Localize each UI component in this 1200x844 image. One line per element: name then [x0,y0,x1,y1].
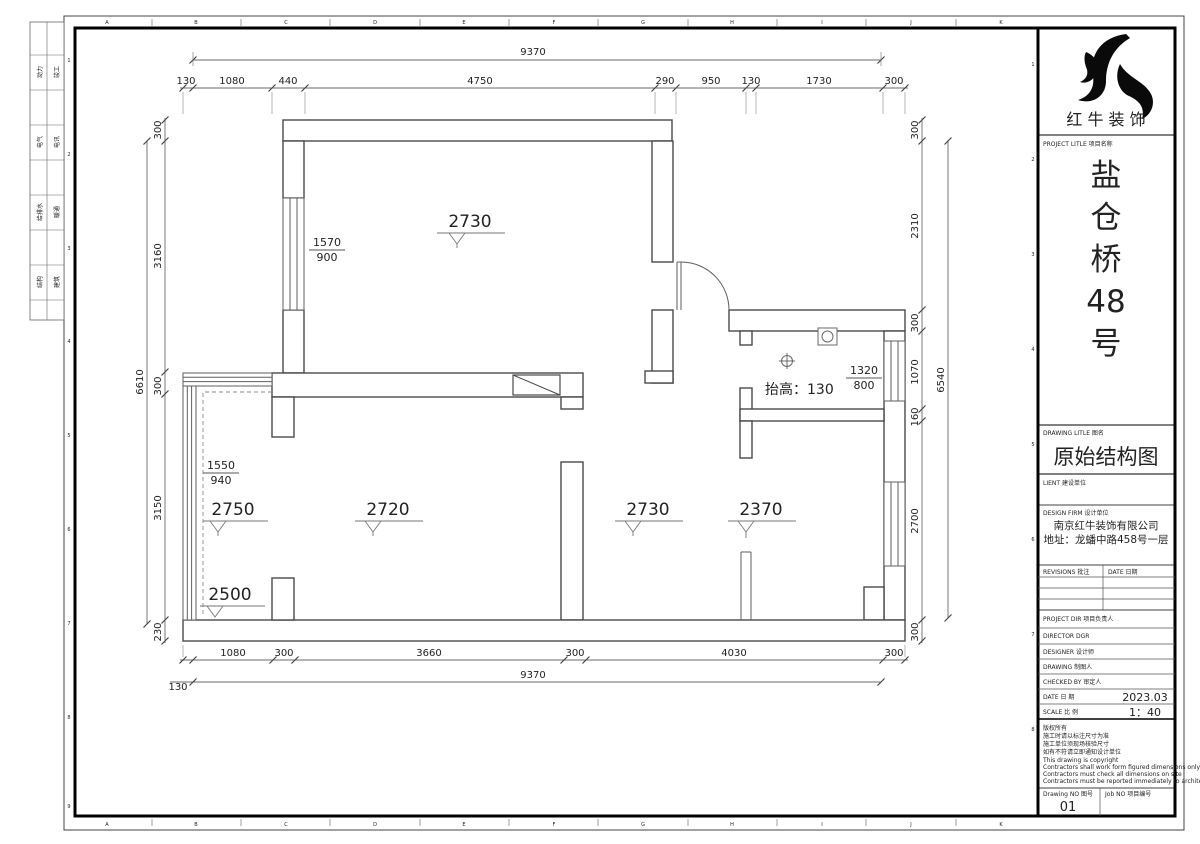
drawing-title-label: DRAWING LITLE 图名 [1043,429,1104,437]
discipline-label: 给排水 [36,203,44,221]
revision-date-label: DATE 日期 [1108,568,1138,576]
dim-right-total: 6540 [936,367,947,392]
note-line: 施工单位须现场核验尺寸 [1043,740,1109,748]
scale-value: 1：40 [1129,706,1161,719]
discipline-strip: 动力 竣工 电气 电讯 给排水 暖通 结构 建筑 [30,22,64,320]
project-name-char: 48 [1086,284,1125,320]
project-label: PROJECT LITLE 项目名称 [1043,140,1113,148]
ruler-number: 3 [1031,252,1034,258]
ruler-letter: B [194,20,198,26]
level-value: 2730 [448,212,491,232]
level-marker-left-mid: 2750 [203,500,268,536]
ruler-letter: C [284,822,288,828]
dim-top: 440 [278,76,297,87]
dim-bottom: 1080 [220,648,245,659]
dim-bottom: 3660 [416,648,441,659]
entry-door [677,262,729,310]
project-dir-label: PROJECT DIR 项目负责人 [1043,615,1113,623]
wall-rightroom-stub [740,421,752,458]
column-left-junction [272,397,294,437]
dim-left: 3150 [153,495,164,520]
dim-left: 300 [153,120,164,139]
level-value: 2370 [739,500,782,520]
discipline-label: 暖通 [53,206,61,218]
wall-left-upper [283,141,304,198]
ruler-letter: D [373,20,377,26]
ruler-number: 4 [1031,347,1034,353]
column-bottom-right [864,587,884,620]
note-line: 如有不符请立即通知设计单位 [1043,748,1121,756]
level-value: 2750 [211,500,254,520]
floor-plan-canvas: A B C D E F G H I J K A B C D E F G H I … [0,0,1200,844]
ruler-letter: F [553,20,556,26]
wall-bath-left-stub-a [740,331,752,345]
floor-drain-icon [779,353,795,369]
note-line: This drawing is copyright [1042,757,1119,764]
window-label-w1: 1570 900 [309,236,345,264]
dim-bottom: 300 [884,648,903,659]
ruler-number: 8 [1031,727,1034,733]
beam-marker [513,375,560,395]
level-value: 2500 [208,585,251,605]
vent-fixture-icon [818,328,837,345]
discipline-label: 竣工 [53,66,61,78]
job-no-label: Job NO 项目编号 [1104,790,1151,798]
level-value: 2730 [626,500,669,520]
project-name-char: 盐 [1091,158,1122,194]
dim-top: 290 [655,76,674,87]
design-firm-label: DESIGN FIRM 设计单位 [1043,509,1109,517]
wall-partition-living [561,462,583,620]
date-value: 2023.03 [1122,691,1168,704]
window-label-w3: 1320 800 [846,364,882,392]
project-name-char: 仓 [1091,200,1122,236]
wall-bath-top [729,310,905,331]
ruler-letter: F [553,822,556,828]
discipline-label: 动力 [36,66,44,78]
window-den: 900 [317,251,338,264]
ruler-number: 5 [67,433,70,439]
note-line: 版权所有 [1043,724,1067,732]
drawing-sheet: A B C D E F G H I J K A B C D E F G H I … [0,0,1200,844]
ruler-letter: B [194,822,198,828]
ruler-letter: K [999,20,1003,26]
project-name-char: 桥 [1091,242,1122,278]
note-line: Contractors shall work form figured dime… [1043,764,1200,771]
level-marker-hall: 2730 [615,500,683,536]
column-bottom-left [272,578,294,620]
drawing-no-value: 01 [1060,800,1077,815]
ruler-letter: A [105,20,109,26]
dim-top: 130 [741,76,760,87]
ruler-letter: A [105,822,109,828]
brand-name: 红 牛 装 饰 [1066,110,1145,129]
drawing-by-label: DRAWING 制图人 [1043,663,1092,671]
project-name-char: 号 [1091,326,1122,362]
dim-bottom: 300 [565,648,584,659]
dim-right: 1070 [910,359,921,384]
wall-partition-step [561,397,583,409]
window-num: 1320 [850,364,878,377]
ruler-number: 5 [1031,442,1034,448]
dim-top-total: 9370 [520,47,545,58]
ruler-letter: C [284,20,288,26]
director-label: DIRECTOR DGR [1043,633,1089,640]
dim-left-total: 6610 [135,369,146,394]
note-line: Contractors must be reported immediately… [1043,778,1200,785]
discipline-label: 电讯 [53,136,61,148]
ruler-letter: E [462,822,465,828]
firm-address: 地址：龙蟠中路458号一层 [1043,533,1168,546]
dim-bottom-total: 9370 [520,670,545,681]
dim-top: 300 [884,76,903,87]
ruler-letter: G [641,20,645,26]
ruler-number: 1 [67,58,70,64]
level-marker-top-room: 2730 [437,212,505,248]
dim-top: 1080 [219,76,244,87]
project-name: 盐 仓 桥 48 号 [1086,158,1125,362]
ruler-number: 2 [67,152,70,158]
ruler-letter: K [999,822,1003,828]
dim-right: 160 [910,407,921,426]
ruler-number: 2 [1031,157,1034,163]
drawing-no-label: Drawing NO 图号 [1043,791,1093,798]
dim-right: 300 [910,120,921,139]
ruler-letter: G [641,822,645,828]
drawing-title: 原始结构图 [1054,445,1159,469]
level-value: 2720 [366,500,409,520]
ruler-number: 6 [1031,537,1034,543]
level-marker-living: 2720 [355,500,423,536]
ruler-letter: I [821,822,822,828]
ruler-number: 1 [1031,62,1034,68]
ruler-letter: J [909,822,911,828]
dim-top: 4750 [467,76,492,87]
window-right-upper [884,341,905,401]
wall-top [283,120,672,141]
dim-left: 300 [153,376,164,395]
ruler-number: 9 [67,804,70,810]
firm-name: 南京红牛装饰有限公司 [1054,519,1159,532]
window-right-lower [884,482,905,566]
window-label-w2: 1550 940 [203,459,239,487]
ruler-letter: I [821,20,822,26]
window-den: 800 [854,379,875,392]
window-den: 940 [211,474,232,487]
brand-logo-icon [1078,34,1153,119]
dim-top: 1730 [806,76,831,87]
client-label: LIENT 建设单位 [1043,479,1086,487]
window-corner [183,373,272,620]
window-num: 1550 [207,459,235,472]
scale-row-label: SCALE 比 例 [1043,708,1078,716]
partition-thin-rail [741,552,751,620]
ruler-letter: J [909,20,911,26]
discipline-label: 建筑 [53,276,61,288]
level-marker-left-low: 2500 [200,585,265,617]
dim-bottom: 300 [274,648,293,659]
ruler-number: 4 [67,339,70,345]
ruler-number: 8 [67,715,70,721]
ruler-number: 7 [67,621,70,627]
raise-note: 抬高：130 [765,381,834,398]
door-swing-arc [681,262,729,310]
ruler-number: 3 [67,246,70,252]
wall-bottom [183,620,905,641]
dim-right: 2310 [910,213,921,238]
dimensions: 9370 130 1080 440 4750 290 950 130 1730 … [135,47,952,693]
revisions-label: REVISIONS 批注 [1043,568,1089,576]
note-line: Contractors must check all dimensions on… [1043,771,1182,778]
checked-by-label: CHECKED BY 审定人 [1043,678,1101,686]
ruler-letter: E [462,20,465,26]
wall-entry-foot [645,371,673,383]
discipline-label: 电气 [36,136,44,148]
dim-top: 950 [701,76,720,87]
dim-right: 300 [910,313,921,332]
wall-right-upper [652,141,673,262]
designer-label: DESIGNER 设计师 [1043,648,1094,656]
dim-left: 3160 [153,243,164,268]
level-marker-right-room: 2370 [728,500,796,538]
dim-left: 230 [153,622,164,641]
note-line: 施工时请以标注尺寸为准 [1043,732,1109,740]
dim-bottom-offset: 130 [168,682,187,693]
window-top-left [283,198,304,310]
date-row-label: DATE 日 期 [1043,693,1074,701]
ruler-letter: H [730,822,734,828]
ruler-number: 6 [67,527,70,533]
wall-left-lower [283,310,304,373]
dim-right: 2700 [910,508,921,533]
dim-bottom: 4030 [721,648,746,659]
dim-top: 130 [176,76,195,87]
ruler-letter: H [730,20,734,26]
ruler-letter: D [373,822,377,828]
discipline-label: 结构 [36,276,44,288]
dim-right: 300 [910,622,921,641]
window-num: 1570 [313,236,341,249]
wall-bath-bottom [740,409,884,421]
ruler-number: 7 [1031,632,1034,638]
